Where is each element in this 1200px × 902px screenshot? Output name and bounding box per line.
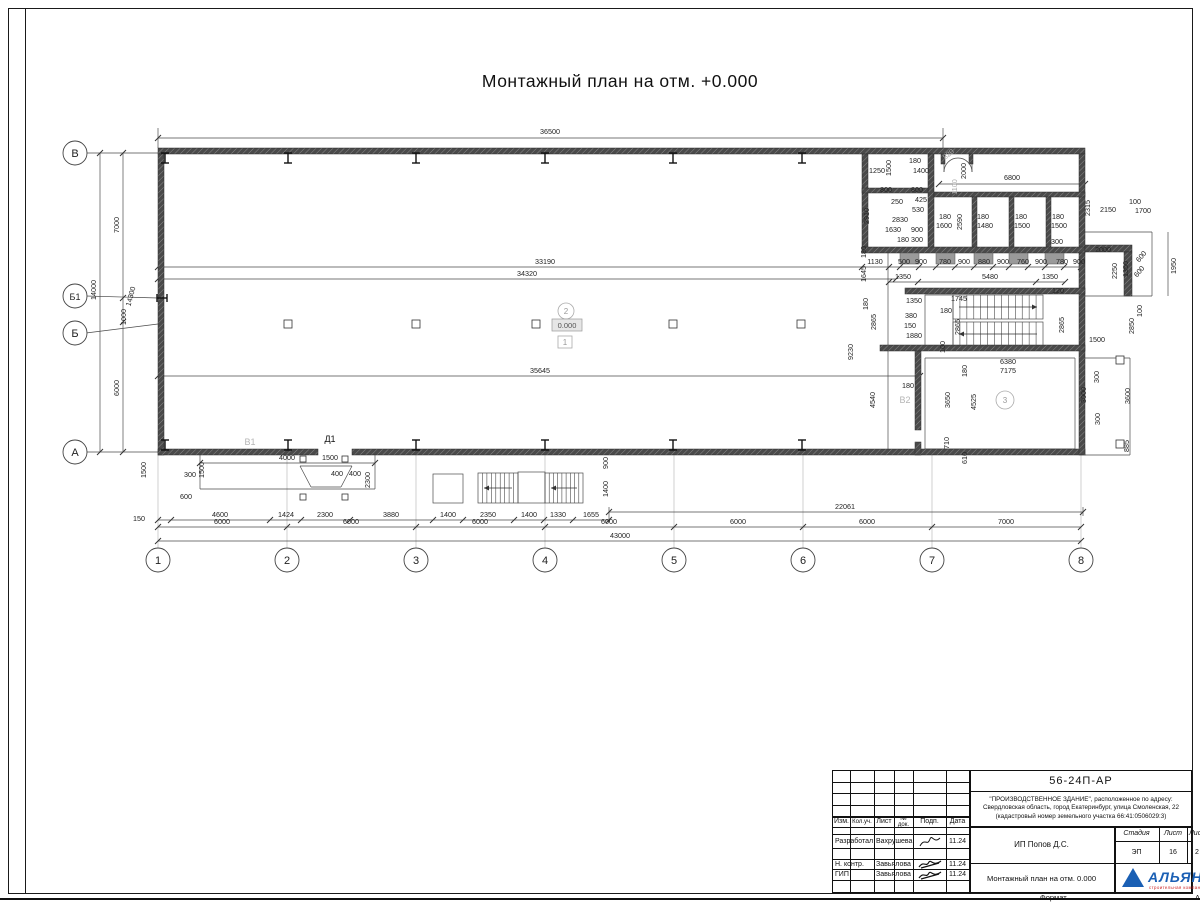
dim-label: 900 [911, 225, 923, 234]
dim-label: 100 [938, 341, 947, 353]
axis-bubble: 5 [662, 548, 686, 572]
dim-label: 1500 [1051, 221, 1067, 230]
stair-flight [953, 322, 1043, 346]
floor-plan: 3650014000700014300100060001500150600300… [0, 0, 1200, 900]
axis-bubble: 6 [791, 548, 815, 572]
dim-label: 2865 [953, 319, 962, 335]
dim-label: 2300 [363, 472, 372, 488]
company-logo: АЛЬЯНС строительная компания [1114, 863, 1193, 894]
steel-column-icon [669, 153, 677, 163]
format-value: А [1195, 893, 1200, 902]
dim-label: 180 [939, 212, 951, 221]
dim-label: 4525 [969, 394, 978, 410]
tb-desc-line1: "ПРОИЗВОДСТВЕННОЕ ЗДАНИЕ", расположенное… [989, 796, 1172, 805]
dim-label: 880 [978, 257, 990, 266]
axis-bubble: В [63, 141, 87, 165]
axis-bubble: 3 [404, 548, 428, 572]
tb-sheets-label: Листов [1187, 826, 1200, 841]
dim-label: 885 [1122, 440, 1131, 452]
svg-text:А: А [71, 447, 79, 459]
logo-company-subtitle: строительная компания [1149, 885, 1200, 890]
axis-bubble: 8 [1069, 548, 1093, 572]
dim-label: 2000 [959, 163, 968, 179]
svg-text:3: 3 [413, 555, 419, 567]
tb-date-ncontr: 11.24 [946, 859, 969, 869]
dim-label: 2850 [1127, 318, 1136, 334]
tb-sheet-value: 16 [1159, 841, 1187, 863]
dim-label: 400 [331, 469, 343, 478]
axis-bubbles: 12345678ВБ1БА [63, 141, 1093, 572]
dim-label: 5480 [982, 272, 998, 281]
dim-label: 1500 [1089, 335, 1105, 344]
dim-label: 1250 [869, 166, 885, 175]
steel-column-icon [798, 440, 806, 450]
axis-bubble: А [63, 440, 87, 464]
tb-name-gip: Завьялова [874, 869, 915, 880]
tb-stage-label: Стадия [1114, 826, 1159, 841]
svg-text:Б: Б [71, 328, 78, 340]
dim-label: 22061 [835, 502, 855, 511]
dim-label: 2865 [1057, 317, 1066, 333]
dim-label: 2150 [1100, 205, 1116, 214]
dim-label: 6000 [214, 517, 230, 526]
tb-client: ИП Попов Д.С. [969, 826, 1114, 863]
dim-label: 1350 [906, 296, 922, 305]
dim-label: 9230 [846, 344, 855, 360]
svg-text:Б1: Б1 [70, 292, 81, 302]
room-number: 2 [564, 307, 569, 316]
tb-role-developer: Разработал [833, 834, 876, 848]
tb-sign-ncontr [913, 859, 946, 869]
dim-label: 6000 [601, 517, 617, 526]
dim-label: 36500 [540, 127, 560, 136]
dim-label: 1500 [197, 462, 206, 478]
dim-label: 300 [1093, 413, 1102, 425]
steel-column-icon [412, 440, 420, 450]
tb-role-ncontr: Н. контр. [833, 859, 876, 869]
tb-date-developer: 11.24 [946, 834, 969, 848]
dim-label: 1400 [913, 166, 929, 175]
title-block: Изм. Кол.уч. Лист № док. Подп. Дата Разр… [832, 770, 1192, 893]
dim-label: 6800 [1004, 173, 1020, 182]
dim-label: 35645 [530, 366, 550, 375]
dim-label: 6000 [343, 517, 359, 526]
dim-label: 1880 [906, 331, 922, 340]
tb-description: "ПРОИЗВОДСТВЕННОЕ ЗДАНИЕ", расположенное… [971, 791, 1191, 826]
signature [917, 835, 943, 848]
dim-label: 300 [184, 470, 196, 479]
dim-label: 6380 [1000, 357, 1016, 366]
dim-label: 600 [180, 492, 192, 501]
dim-label: 180 [861, 298, 870, 310]
dim-label: 43000 [610, 531, 630, 540]
opening-label: В2 [899, 395, 910, 405]
dim-label: 1500 [1014, 221, 1030, 230]
dim-label: 780 [939, 257, 951, 266]
dim-label: 530 [912, 205, 924, 214]
dim-label: 900 [601, 457, 610, 469]
svg-text:2: 2 [284, 555, 290, 567]
tb-col-koluch: Кол.уч. [850, 816, 874, 827]
dim-label: 1645 [859, 266, 868, 282]
tb-drawing-name: Монтажный план на отм. 0.000 [969, 863, 1114, 894]
dim-label: 1950 [1169, 258, 1178, 274]
dim-label: 100 [1129, 197, 1141, 206]
dim-label: 800 [911, 185, 923, 194]
dim-label: 600 [1134, 249, 1149, 264]
dim-label: 3650 [943, 392, 952, 408]
tb-col-list: Лист [874, 816, 894, 827]
dim-label: 2865 [869, 314, 878, 330]
dim-label: 1350 [1121, 261, 1130, 277]
dim-label: 7175 [1000, 366, 1016, 375]
steel-column-icon [669, 440, 677, 450]
dim-label: 380 [905, 311, 917, 320]
dim-label: 14300 [124, 286, 138, 308]
dim-label: 150 [133, 514, 145, 523]
tb-name-ncontr: Завьялова [874, 859, 915, 869]
dim-label: 900 [958, 257, 970, 266]
dim-label: 3600 [1123, 388, 1132, 404]
dim-label: 1350 [1042, 272, 1058, 281]
format-strip: Формат А [1040, 893, 1200, 902]
dim-label: 2000 [1095, 245, 1111, 254]
dim-label: 120 [1052, 286, 1064, 295]
dim-label: 1480 [977, 221, 993, 230]
zone-number: 1 [563, 338, 568, 347]
svg-text:В: В [71, 148, 78, 160]
dim-label: 2300 [317, 510, 333, 519]
signature [917, 859, 943, 869]
dim-label: 180 [909, 156, 921, 165]
opening-label: Д1 [324, 434, 335, 444]
dim-label: 150 [904, 321, 916, 330]
dim-label: 800 [880, 185, 892, 194]
dim-label: 1424 [278, 510, 294, 519]
tb-sheet-label: Лист [1159, 826, 1187, 841]
dim-label: 300 [1051, 237, 1063, 246]
dimension-lines [86, 128, 1168, 541]
dim-label: 2315 [1083, 200, 1092, 216]
walls [158, 148, 1132, 455]
tb-stage-value: ЭП [1114, 841, 1159, 863]
axis-bubble: Б1 [63, 284, 87, 308]
dim-label: 2250 [1110, 263, 1119, 279]
dim-label: 100 [1135, 305, 1144, 317]
steel-column-icon [284, 440, 292, 450]
dim-label: 760 [1017, 257, 1029, 266]
axis-bubble: 2 [275, 548, 299, 572]
dim-label: 6000 [112, 380, 121, 396]
dim-label: 900 [1035, 257, 1047, 266]
dim-label: 900 [1073, 257, 1085, 266]
dim-label: 1400 [521, 510, 537, 519]
opening-labels: В1Д1В2 [244, 395, 910, 447]
svg-text:1: 1 [155, 555, 161, 567]
svg-text:5: 5 [671, 555, 677, 567]
dim-label: 3000 [1079, 387, 1088, 403]
dim-label: 2830 [892, 215, 908, 224]
dim-label: 1000 [119, 309, 128, 325]
steel-column-icon [412, 153, 420, 163]
dim-label: 300 [911, 235, 923, 244]
dim-label: 1400 [440, 510, 456, 519]
dim-label: 250 [891, 197, 903, 206]
room-number: 3 [1003, 396, 1008, 405]
dim-label: 180 [977, 212, 989, 221]
stair-flight [545, 473, 583, 503]
dim-label: 900 [997, 257, 1009, 266]
logo-triangle-icon [1122, 868, 1144, 887]
dim-label: 1330 [550, 510, 566, 519]
dim-label: 180 [1015, 212, 1027, 221]
dim-label: 3880 [383, 510, 399, 519]
dim-label: 180 [902, 381, 914, 390]
dim-label: 425 [915, 195, 927, 204]
dim-label: 1600 [936, 221, 952, 230]
dim-label: 710 [942, 437, 951, 449]
dim-label: 400 [349, 469, 361, 478]
steel-column-icon [798, 153, 806, 163]
dim-label: 1350 [895, 272, 911, 281]
tb-date-gip: 11.24 [946, 869, 969, 880]
dim-label: 1500 [322, 453, 338, 462]
dim-label: 14000 [89, 280, 98, 300]
dim-label: 1500 [884, 160, 893, 176]
svg-text:7: 7 [929, 555, 935, 567]
drawing-sheet: Монтажный план на отм. +0.000 3650014000… [0, 0, 1200, 900]
tb-col-ndok: № док. [894, 816, 913, 827]
axis-bubble: Б [63, 321, 87, 345]
dim-label: 6000 [472, 517, 488, 526]
dim-label: 500 [898, 257, 910, 266]
dim-label: 300 [1092, 371, 1101, 383]
tb-sign-developer [913, 834, 946, 848]
dim-label: 1130 [867, 257, 882, 266]
svg-text:6: 6 [800, 555, 806, 567]
dim-label: 1655 [583, 510, 599, 519]
dim-label: 4540 [868, 392, 877, 408]
dim-label: 7000 [112, 217, 121, 233]
tb-name-developer: Вахрушева [874, 834, 915, 848]
dim-label: 180 [897, 235, 909, 244]
tb-col-podp: Подп. [913, 816, 946, 827]
dim-label: 6000 [730, 517, 746, 526]
steel-column-icon [541, 153, 549, 163]
dim-label: 180 [940, 306, 952, 315]
dim-label: 2590 [955, 214, 964, 230]
level-mark: 0.000 [558, 321, 577, 330]
axis-bubble: 1 [146, 548, 170, 572]
tb-doc-number: 56-24П-АР [969, 771, 1193, 791]
dim-label: 1500 [139, 462, 148, 478]
dim-label: 900 [915, 257, 927, 266]
tb-role-gip: ГИП [833, 869, 876, 880]
dimension-labels: 3650014000700014300100060001500150600300… [89, 127, 1178, 540]
stair-flight [478, 473, 518, 503]
dim-label: 600 [1132, 264, 1147, 279]
tb-desc-line3: (кадастровый номер земельного участка 66… [996, 813, 1167, 822]
dim-label: 6000 [859, 517, 875, 526]
steel-column-icons [157, 153, 806, 450]
axis-bubble: 7 [920, 548, 944, 572]
dim-label: 2910 [862, 208, 871, 224]
tb-desc-line2: Свердловская область, город Екатеринбург… [983, 804, 1179, 813]
svg-text:8: 8 [1078, 555, 1084, 567]
tb-col-izm: Изм. [833, 816, 850, 827]
dim-label: 4000 [279, 453, 295, 462]
tb-col-data: Дата [946, 816, 969, 827]
dim-label: 1100 [950, 179, 959, 194]
dim-label: 34320 [517, 269, 537, 278]
dim-label: 780 [1056, 257, 1068, 266]
dim-label: 33190 [535, 257, 555, 266]
svg-text:4: 4 [542, 555, 548, 567]
logo-company-name: АЛЬЯНС [1148, 869, 1200, 885]
dim-label: 1745 [951, 294, 967, 303]
dim-label: 1630 [885, 225, 901, 234]
format-label: Формат [1040, 893, 1067, 902]
tb-sheets-value: 2 [1187, 841, 1200, 863]
signature [917, 870, 943, 880]
dim-label: 180 [1052, 212, 1064, 221]
axis-bubble: 4 [533, 548, 557, 572]
opening-label: В1 [244, 437, 255, 447]
dim-label: 7000 [998, 517, 1014, 526]
dim-label: 180 [859, 246, 868, 258]
tb-sign-gip [913, 869, 946, 880]
dim-label: 610 [960, 452, 969, 464]
dim-label: 180 [960, 365, 969, 377]
dim-label: 1700 [1135, 206, 1151, 215]
steel-column-icon [541, 440, 549, 450]
dim-label: 1400 [601, 481, 610, 497]
steel-column-icon [284, 153, 292, 163]
